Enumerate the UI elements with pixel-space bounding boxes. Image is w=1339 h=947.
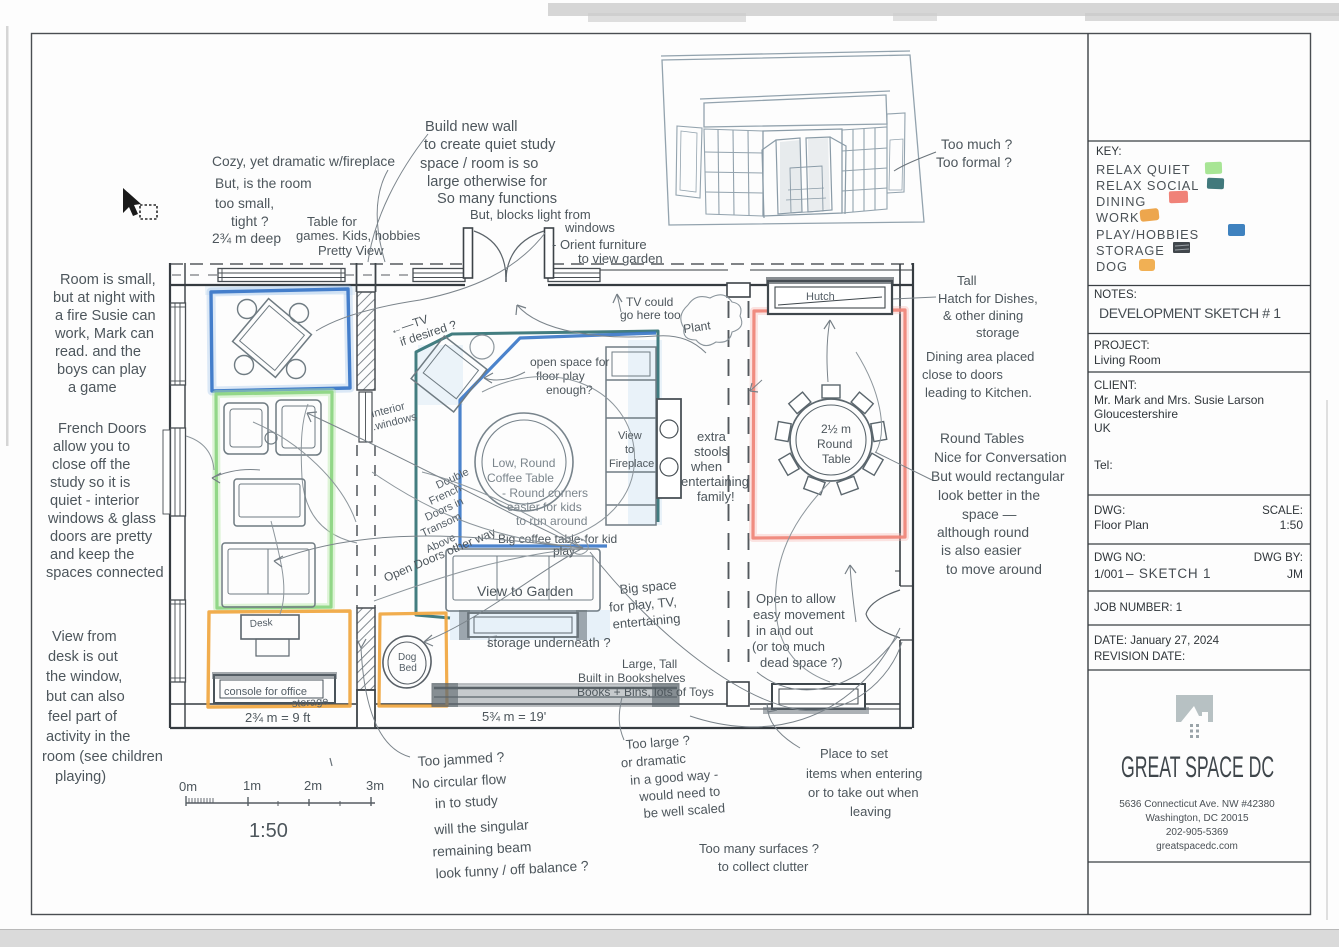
svg-text:open space for: open space for [530,355,609,369]
svg-text:tight ?: tight ? [231,214,269,229]
svg-text:- Orient furniture: - Orient furniture [552,237,647,252]
svg-text:quiet - interior: quiet - interior [50,493,139,509]
svg-text:& other dining: & other dining [943,308,1023,323]
svg-text:or to take out when: or to take out when [808,785,919,800]
svg-text:Cozy, yet dramatic w/fireplace: Cozy, yet dramatic w/fireplace [212,154,395,169]
svg-text:items when entering: items when entering [806,766,922,781]
svg-text:playing): playing) [55,769,106,785]
svg-text:read. and the: read. and the [55,344,141,360]
svg-text:spaces connected: spaces connected [46,565,164,581]
svg-text:close off the: close off the [52,457,130,473]
svg-text:KEY:: KEY: [1096,146,1122,158]
svg-text:TV could: TV could [626,295,673,309]
svg-text:Floor Plan: Floor Plan [1094,518,1149,532]
svg-text:View to Garden: View to Garden [477,583,573,599]
svg-text:Round Tables: Round Tables [940,431,1024,446]
svg-text:SCALE:: SCALE: [1262,505,1303,517]
svg-text:1m: 1m [243,778,261,793]
svg-text:leaving: leaving [850,804,891,819]
svg-text:dead space ?): dead space ?) [760,655,842,670]
svg-text:Hatch for Dishes,: Hatch for Dishes, [938,291,1038,306]
svg-text:is also easier: is also easier [941,543,1022,558]
svg-text:STORAGE: STORAGE [1096,243,1165,258]
svg-text:DWG NO:: DWG NO: [1094,552,1146,564]
svg-text:RELAX QUIET: RELAX QUIET [1096,162,1191,177]
svg-text:So many functions: So many functions [437,191,557,207]
svg-text:games. Kids, hobbies: games. Kids, hobbies [296,228,421,243]
svg-text:GREAT SPACE DC: GREAT SPACE DC [1121,752,1274,784]
svg-text:Dining area placed: Dining area placed [926,349,1034,364]
svg-text:Dog: Dog [398,652,416,663]
svg-text:Hutch: Hutch [806,291,835,303]
svg-text:family!: family! [697,489,735,504]
svg-text:storage underneath ?: storage underneath ? [487,635,611,650]
svg-text:3m: 3m [366,778,384,793]
svg-text:Tel:: Tel: [1094,458,1113,472]
svg-text:space —: space — [962,507,1017,522]
svg-text:DOG: DOG [1096,259,1128,274]
svg-text:a fire Susie can: a fire Susie can [55,308,156,324]
svg-text:when: when [690,459,722,474]
svg-text:5¾ m = 19': 5¾ m = 19' [482,709,546,724]
svg-text:room (see children: room (see children [42,749,163,765]
svg-text:2¾ m = 9 ft: 2¾ m = 9 ft [245,710,311,725]
svg-text:easy movement: easy movement [753,607,845,622]
svg-text:JM: JM [1287,567,1303,581]
svg-text:Build new wall: Build new wall [425,119,517,135]
svg-text:to: to [625,444,634,456]
svg-text:Living Room: Living Room [1094,353,1161,367]
svg-text:easier for kids: easier for kids [507,500,582,514]
svg-text:console for office: console for office [224,686,307,698]
svg-text:2m: 2m [304,778,322,793]
svg-text:DWG:: DWG: [1094,505,1125,517]
svg-text:boys can play: boys can play [57,362,147,378]
svg-text:DINING: DINING [1096,194,1146,209]
svg-text:2½ m: 2½ m [821,422,851,436]
svg-text:windows: windows [564,220,615,235]
svg-text:Low, Round: Low, Round [492,456,555,470]
svg-text:– SKETCH 1: – SKETCH 1 [1126,566,1211,581]
svg-text:to move around: to move around [946,562,1042,577]
svg-text:Built in Bookshelves: Built in Bookshelves [578,671,685,685]
svg-text:WORK: WORK [1096,210,1139,225]
svg-text:Washington, DC 20015: Washington, DC 20015 [1145,813,1248,824]
svg-text:doors are pretty: doors are pretty [50,529,153,545]
svg-text:work, Mark can: work, Mark can [54,326,154,342]
svg-text:But would rectangular: But would rectangular [931,469,1065,484]
svg-text:Too formal ?: Too formal ? [936,155,1012,170]
svg-text:activity in the: activity in the [46,729,130,745]
svg-text:large otherwise for: large otherwise for [427,174,547,190]
svg-text:stools: stools [694,444,728,459]
svg-text:to collect clutter: to collect clutter [718,859,809,874]
svg-text:Desk: Desk [249,617,273,630]
svg-text:space / room is so: space / room is so [420,156,538,172]
svg-text:storage: storage [976,325,1019,340]
svg-text:close to doors: close to doors [922,367,1003,382]
svg-text:UK: UK [1094,421,1111,435]
svg-text:study so it is: study so it is [50,475,130,491]
svg-text:DATE: January 27, 2024: DATE: January 27, 2024 [1094,635,1220,647]
svg-text:Fireplace: Fireplace [609,458,654,470]
svg-text:CLIENT:: CLIENT: [1094,380,1137,392]
svg-text:feel part of: feel part of [48,709,118,725]
svg-text:go here too: go here too [620,308,681,322]
svg-text:to create quiet study: to create quiet study [424,137,556,153]
svg-text:Pretty View: Pretty View [318,243,384,258]
svg-text:greatspacedc.com: greatspacedc.com [1156,841,1238,852]
svg-text:storage: storage [291,695,328,710]
svg-text:allow you to: allow you to [53,439,130,455]
svg-text:JOB NUMBER: 1: JOB NUMBER: 1 [1094,602,1182,614]
svg-text:2¾ m deep: 2¾ m deep [212,231,281,246]
svg-text:but can also: but can also [46,689,125,705]
svg-text:and keep the: and keep the [50,547,134,563]
svg-text:extra: extra [697,429,727,444]
svg-text:1:50: 1:50 [249,820,288,842]
svg-text:0m: 0m [179,779,197,794]
svg-text:Books + Bins, lots of Toys: Books + Bins, lots of Toys [577,685,714,699]
svg-text:Mr. Mark and Mrs. Susie Larson: Mr. Mark and Mrs. Susie Larson [1094,393,1264,407]
svg-text:REVISION DATE:: REVISION DATE: [1094,651,1185,663]
svg-text:windows & glass: windows & glass [47,511,156,527]
svg-text:NOTES:: NOTES: [1094,289,1137,301]
svg-text:RELAX SOCIAL: RELAX SOCIAL [1096,178,1199,193]
svg-text:Nice for Conversation: Nice for Conversation [934,450,1067,465]
svg-text:DWG BY:: DWG BY: [1254,552,1303,564]
svg-text:a game: a game [68,380,117,396]
svg-text:Place to set: Place to set [820,746,888,761]
svg-text:202-905-5369: 202-905-5369 [1166,827,1229,838]
svg-text:Coffee Table: Coffee Table [487,471,554,485]
svg-text:DEVELOPMENT SKETCH # 1: DEVELOPMENT SKETCH # 1 [1099,305,1282,321]
svg-text:to view garden: to view garden [578,251,663,266]
svg-text:Too many surfaces ?: Too many surfaces ? [699,841,819,856]
svg-text:in and out: in and out [756,623,813,638]
svg-text:Round: Round [817,437,852,451]
svg-text:the window,: the window, [46,669,122,685]
svg-text:Gloucestershire: Gloucestershire [1094,407,1178,421]
svg-text:Table: Table [822,452,851,466]
svg-text:Tall: Tall [957,273,977,288]
svg-text:too small,: too small, [215,196,274,211]
svg-text:although round: although round [937,525,1029,540]
svg-text:Too much ?: Too much ? [941,137,1013,152]
svg-text:PLAY/HOBBIES: PLAY/HOBBIES [1096,227,1199,242]
svg-text:entertaining: entertaining [681,474,749,489]
svg-text:1/001: 1/001 [1094,567,1124,581]
svg-text:Room is small,: Room is small, [60,272,156,288]
svg-text:French Doors: French Doors [58,421,146,437]
svg-text:Open to allow: Open to allow [756,591,836,606]
svg-text:look better in the: look better in the [938,488,1040,503]
svg-text:5636 Connecticut Ave. NW #4238: 5636 Connecticut Ave. NW #42380 [1119,799,1275,810]
svg-text:PROJECT:: PROJECT: [1094,340,1150,352]
svg-text:- Round corners: - Round corners [502,486,588,500]
svg-text:Table for: Table for [307,214,358,229]
svg-text:leading to Kitchen.: leading to Kitchen. [925,385,1032,400]
svg-text:But, is the room: But, is the room [215,176,312,191]
svg-text:View from: View from [52,629,117,645]
svg-text:1:50: 1:50 [1280,518,1304,532]
svg-text:but at night with: but at night with [53,290,155,306]
svg-text:desk is out: desk is out [48,649,118,665]
svg-text:Large, Tall: Large, Tall [622,657,677,671]
svg-text:Bed: Bed [399,663,417,674]
